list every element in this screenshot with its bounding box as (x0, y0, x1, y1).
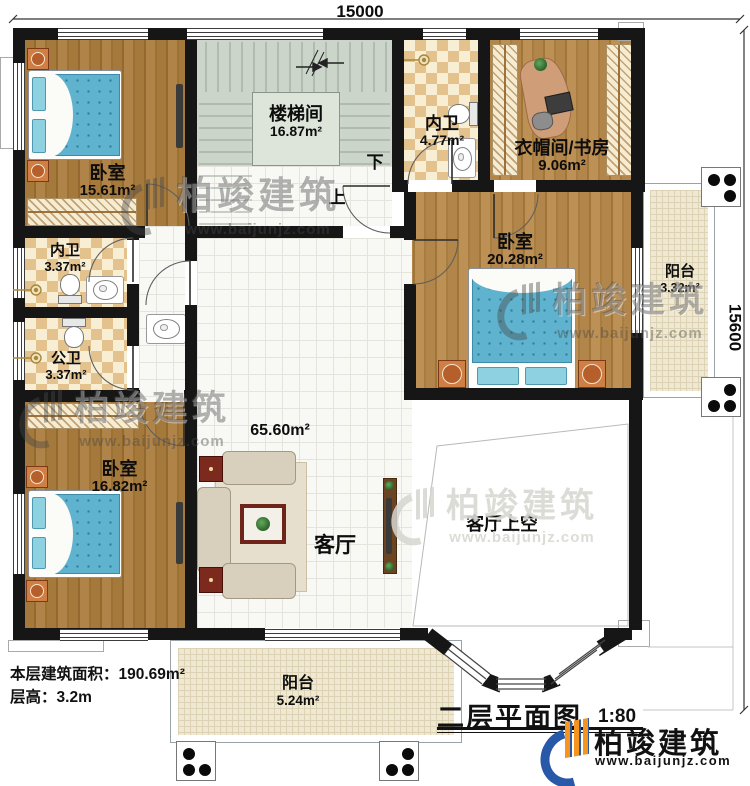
wall (604, 628, 632, 640)
side-table (199, 456, 223, 482)
wall (478, 40, 490, 192)
dimension-top: 15000 (330, 2, 390, 21)
wall (185, 305, 197, 402)
tv-wall-unit (176, 502, 183, 564)
room-label-bath-top: 内卫 4.77m² (405, 114, 479, 149)
side-table (199, 567, 223, 593)
double-bed (28, 70, 122, 160)
wall (127, 226, 139, 240)
sofa (222, 563, 296, 599)
room-label-bedroom-top-left: 卧室 15.61m² (60, 163, 155, 200)
room-label-bath-left-lower: 公卫 3.37m² (30, 351, 102, 382)
wall (13, 390, 140, 402)
wardrobe (27, 403, 139, 429)
toilet-icon (62, 318, 86, 350)
stair-up-label: 上 (324, 188, 350, 207)
window (13, 494, 25, 574)
wardrobe (27, 198, 137, 226)
watermark: 柏竣建筑 www.baijunjz.com (392, 478, 598, 546)
window (520, 28, 598, 40)
wall (392, 180, 408, 192)
room-label-cloakroom-study: 衣帽间/书房 9.06m² (494, 138, 630, 175)
pillow (477, 367, 519, 385)
window (187, 28, 323, 40)
floor-area-info: 本层建筑面积：190.69m² (10, 662, 185, 684)
sliding-door (265, 629, 400, 641)
brand-logo-icon (541, 718, 595, 774)
wall (631, 28, 645, 192)
room-label-bath-left-upper: 内卫 3.37m² (30, 243, 100, 274)
window (13, 248, 25, 298)
wall (189, 226, 343, 238)
sofa (222, 451, 296, 485)
double-bed (468, 268, 576, 390)
wall (392, 40, 404, 192)
column-marker (701, 167, 741, 207)
room-label-stairwell: 楼梯间 16.87m² (252, 104, 340, 140)
wall (404, 388, 643, 400)
wall (631, 192, 643, 248)
wall (452, 180, 494, 192)
plant-icon (534, 58, 547, 71)
pillow (32, 497, 46, 529)
plant-icon (385, 562, 394, 571)
column-marker (379, 741, 419, 781)
wall (184, 390, 197, 402)
nightstand (438, 360, 466, 388)
room-label-bedroom-bottom-left: 卧室 16.82m² (72, 459, 167, 496)
pillow (525, 367, 567, 385)
column-marker (701, 377, 741, 417)
living-room-area-label: 65.60m² (240, 422, 320, 440)
window (631, 248, 643, 333)
wall (13, 226, 145, 238)
stair-down-label: 下 (362, 153, 388, 172)
window (13, 63, 25, 150)
floor-height-info: 层高：3.2m (10, 685, 92, 707)
plant-icon (256, 517, 270, 531)
corridor-sink-counter (146, 314, 186, 344)
column-marker (176, 741, 216, 781)
wall (536, 180, 645, 192)
wall (629, 400, 642, 630)
nightstand (578, 360, 606, 388)
nightstand (27, 48, 49, 70)
pillow (32, 119, 46, 153)
wall (631, 333, 643, 400)
pillow (32, 537, 46, 569)
wall (390, 226, 404, 238)
wall (404, 192, 416, 240)
wall (185, 238, 197, 261)
television (386, 498, 392, 554)
window (423, 28, 466, 40)
wall (400, 628, 428, 640)
wall (13, 307, 139, 318)
room-label-bedroom-right: 卧室 20.28m² (455, 232, 575, 269)
nightstand (26, 466, 48, 488)
wall (197, 628, 265, 640)
room-label-balcony-right: 阳台 3.32m² (645, 264, 715, 295)
wall (404, 284, 416, 388)
window (58, 28, 148, 40)
brand-url: www.baijunjz.com (595, 753, 731, 768)
dimension-right: 15600 (725, 293, 744, 363)
toilet-icon (58, 272, 82, 304)
window (60, 629, 148, 641)
room-label-balcony-bottom: 阳台 5.24m² (250, 675, 346, 708)
exterior-eave-bottom-left (8, 640, 104, 652)
window (13, 322, 25, 380)
vanity-counter (86, 276, 124, 304)
pillow (32, 77, 46, 111)
plant-icon (385, 481, 394, 490)
sofa (197, 487, 231, 573)
living-void-label: 客厅上空 (452, 514, 552, 534)
nightstand (26, 580, 48, 602)
wall (185, 402, 197, 640)
living-room-name-label: 客厅 (300, 534, 370, 558)
tv-wall-unit (176, 84, 183, 148)
wall (185, 40, 197, 238)
double-bed (28, 490, 122, 578)
floor-stair-landing (197, 166, 392, 226)
floor-plan: 15000 15600 卧室 15.61m² 楼梯间 16.87m² 内卫 4.… (0, 0, 750, 786)
nightstand (27, 160, 49, 182)
